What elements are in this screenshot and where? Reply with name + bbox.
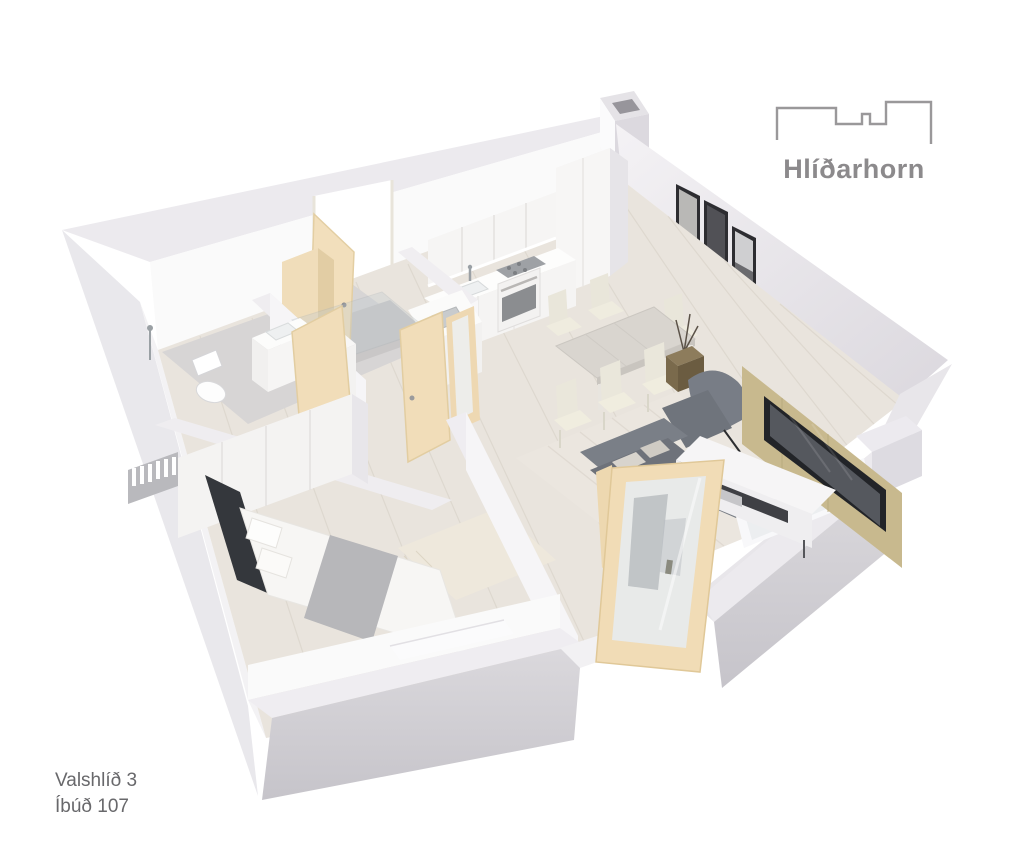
bedroom-door-leaf — [400, 312, 450, 462]
plan-labels: Valshlíð 3 Íbúð 107 — [55, 768, 137, 819]
building-skyline-outline-icon — [774, 96, 934, 148]
unit-label: Íbúð 107 — [55, 794, 137, 820]
balcony-door-leaf — [596, 460, 724, 672]
brand-block: Hlíðarhorn — [754, 96, 954, 185]
address-label: Valshlíð 3 — [55, 768, 137, 794]
logo-text: Hlíðarhorn — [754, 154, 954, 185]
bedroom-door-handle — [410, 396, 415, 401]
